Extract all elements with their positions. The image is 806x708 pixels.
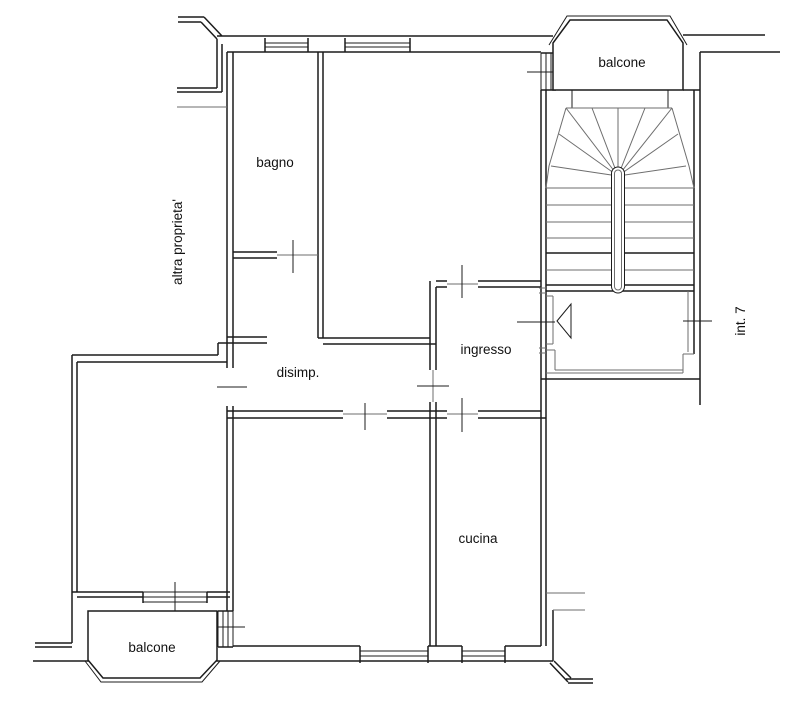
entrance-door-swing bbox=[557, 304, 571, 338]
balcony-top bbox=[549, 16, 687, 90]
room-labels: balcone bagno altra proprieta' ingresso … bbox=[128, 55, 748, 655]
floor-plan-drawing: balcone bagno altra proprieta' ingresso … bbox=[0, 0, 806, 708]
label-balcone-top: balcone bbox=[598, 55, 645, 70]
label-cucina: cucina bbox=[458, 531, 498, 546]
label-bagno: bagno bbox=[256, 155, 294, 170]
landing-interior-lines bbox=[539, 288, 688, 370]
stair-handrail-outer bbox=[612, 167, 625, 293]
label-int-7: int. 7 bbox=[733, 306, 748, 335]
label-disimp: disimp. bbox=[277, 365, 320, 380]
exterior-walls bbox=[33, 17, 780, 683]
exterior-wall-lines bbox=[33, 17, 780, 683]
floor-plan-canvas: balcone bagno altra proprieta' ingresso … bbox=[0, 0, 806, 708]
staircase bbox=[546, 90, 694, 293]
label-ingresso: ingresso bbox=[460, 342, 511, 357]
stair-landing bbox=[539, 288, 688, 370]
label-altra-proprieta: altra proprieta' bbox=[170, 199, 185, 285]
label-balcone-bottom: balcone bbox=[128, 640, 175, 655]
stair-connector-lines bbox=[572, 90, 668, 108]
